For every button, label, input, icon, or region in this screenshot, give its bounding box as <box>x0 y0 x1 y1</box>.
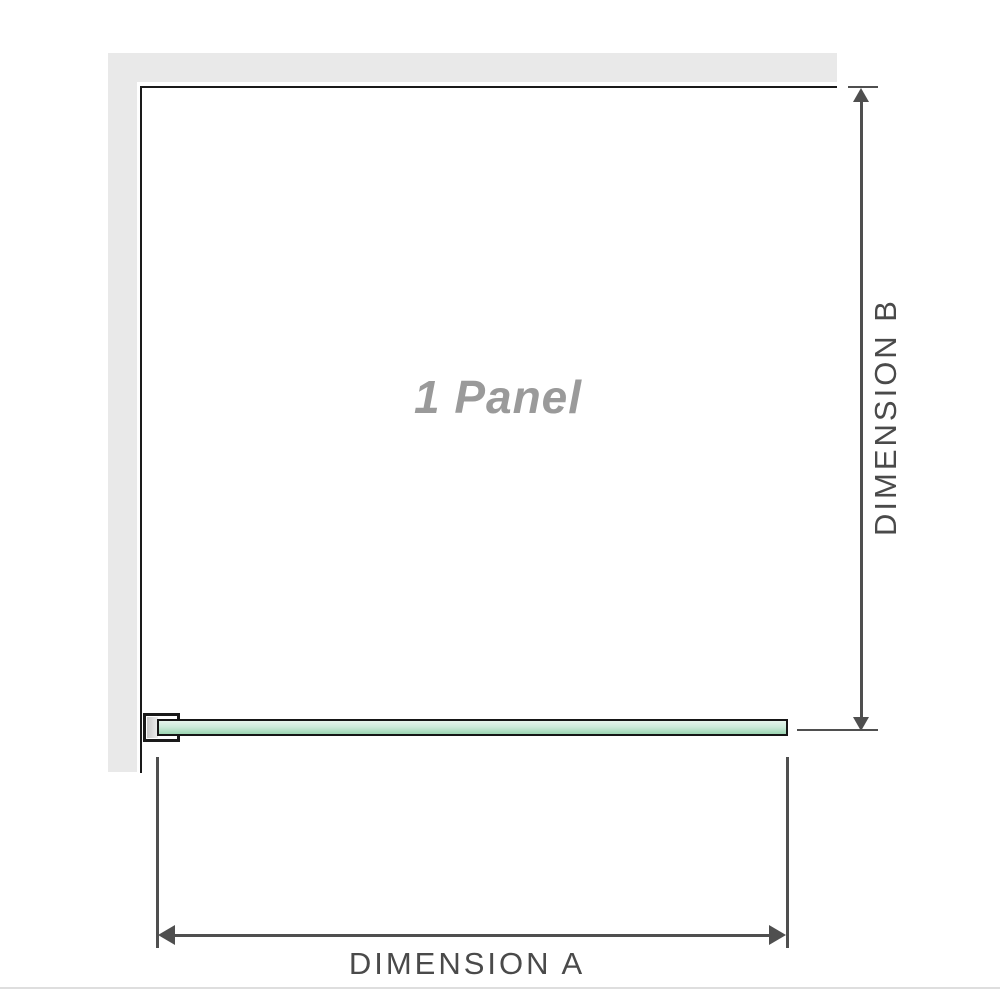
panel-outline-left <box>140 86 142 773</box>
diagram-canvas: 1 Panel DIMENSION B DIMENSION A <box>0 0 1000 1000</box>
dimension-b-tick-bottom <box>797 729 878 731</box>
wall-left <box>108 53 137 772</box>
dimension-a-line <box>168 934 777 937</box>
dimension-a-extension-right <box>786 757 789 948</box>
arrow-left-icon <box>158 925 175 945</box>
dimension-a-extension-left <box>156 757 159 948</box>
arrow-right-icon <box>769 925 786 945</box>
bottom-separator-line <box>0 987 1000 989</box>
dimension-a-label: DIMENSION A <box>317 944 617 984</box>
wall-top <box>108 53 837 82</box>
arrow-up-icon <box>853 88 869 102</box>
panel-outline-top <box>140 86 837 88</box>
dimension-b-label: DIMENSION B <box>866 267 906 567</box>
panel-label: 1 Panel <box>338 365 658 429</box>
glass-panel-bar <box>157 719 788 736</box>
dimension-b-line <box>860 96 863 720</box>
